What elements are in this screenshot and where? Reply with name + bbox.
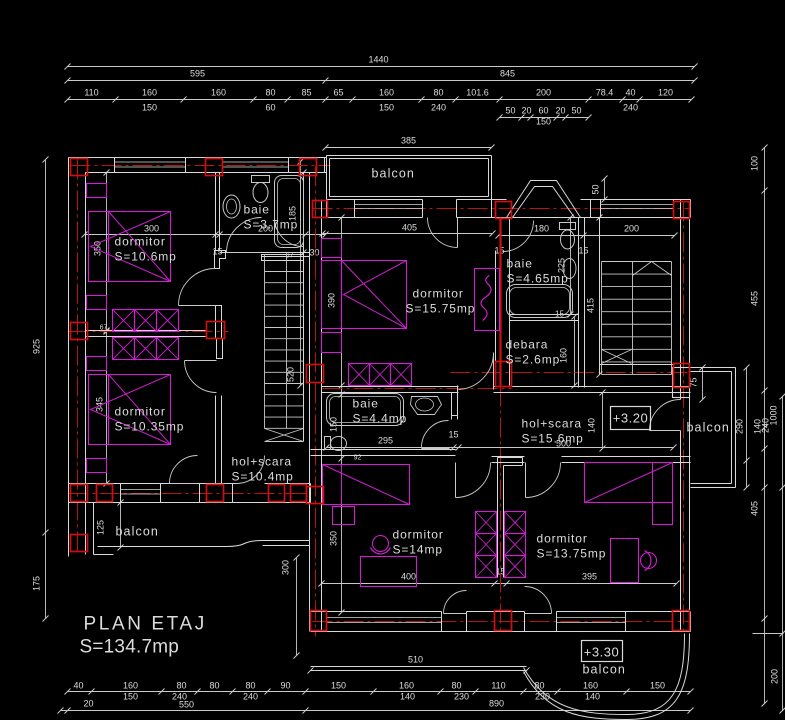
svg-text:415: 415: [586, 298, 596, 313]
svg-text:595: 595: [190, 69, 205, 79]
svg-text:240: 240: [623, 103, 638, 113]
svg-text:60: 60: [538, 106, 548, 116]
svg-text:78.4: 78.4: [596, 88, 614, 98]
svg-text:15: 15: [448, 430, 458, 440]
svg-text:925: 925: [32, 339, 42, 354]
svg-text:140: 140: [585, 692, 600, 702]
svg-text:120: 120: [658, 88, 673, 98]
svg-text:390: 390: [327, 293, 337, 308]
svg-text:85: 85: [301, 88, 311, 98]
svg-text:65: 65: [333, 88, 343, 98]
svg-text:455: 455: [750, 291, 760, 306]
svg-text:160: 160: [142, 88, 157, 98]
svg-text:50: 50: [591, 184, 601, 194]
svg-text:240: 240: [431, 103, 446, 113]
svg-text:240: 240: [243, 692, 258, 702]
svg-text:200: 200: [770, 669, 780, 684]
svg-text:balcon: balcon: [116, 525, 159, 539]
svg-text:dormitor: dormitor: [393, 528, 444, 542]
svg-text:125: 125: [96, 520, 106, 535]
svg-text:200: 200: [536, 88, 551, 98]
svg-text:S=10.6mp: S=10.6mp: [115, 250, 177, 264]
svg-text:80: 80: [433, 88, 443, 98]
svg-text:S=2.6mp: S=2.6mp: [506, 353, 561, 367]
svg-text:150: 150: [142, 103, 157, 113]
svg-text:80: 80: [176, 681, 186, 691]
svg-text:110: 110: [84, 88, 98, 98]
svg-text:395: 395: [582, 572, 597, 582]
svg-text:balcon: balcon: [372, 167, 415, 181]
svg-text:110: 110: [491, 681, 505, 691]
svg-text:400: 400: [401, 572, 416, 582]
svg-text:80: 80: [451, 681, 461, 691]
svg-text:S=4.65mp: S=4.65mp: [507, 272, 569, 286]
svg-text:175: 175: [32, 576, 42, 591]
svg-text:+3.20: +3.20: [613, 411, 648, 426]
svg-text:30: 30: [309, 248, 319, 258]
svg-text:200: 200: [624, 224, 639, 234]
svg-text:510: 510: [408, 655, 423, 665]
svg-text:80: 80: [209, 681, 219, 691]
svg-text:PLAN ETAJ: PLAN ETAJ: [84, 614, 207, 635]
svg-text:80: 80: [245, 681, 255, 691]
svg-text:dormitor: dormitor: [115, 405, 166, 419]
svg-text:15: 15: [212, 247, 222, 257]
svg-text:150: 150: [331, 681, 346, 691]
svg-text:150: 150: [650, 681, 665, 691]
svg-text:50: 50: [571, 106, 581, 116]
svg-text:295: 295: [378, 436, 393, 446]
svg-text:845: 845: [500, 69, 515, 79]
svg-text:90: 90: [280, 681, 290, 691]
svg-text:S=4.4mp: S=4.4mp: [353, 412, 408, 426]
svg-text:S=10.4mp: S=10.4mp: [232, 470, 294, 484]
svg-text:20: 20: [555, 106, 565, 116]
svg-text:40: 40: [625, 88, 635, 98]
svg-text:S=3.7mp: S=3.7mp: [244, 218, 299, 232]
svg-text:150: 150: [379, 103, 394, 113]
svg-text:230: 230: [454, 692, 469, 702]
svg-text:150: 150: [123, 692, 138, 702]
svg-text:50: 50: [505, 106, 515, 116]
svg-text:balcon: balcon: [583, 663, 626, 677]
svg-text:101.6: 101.6: [466, 88, 489, 98]
svg-text:60: 60: [265, 103, 275, 113]
svg-text:180: 180: [534, 224, 549, 234]
svg-text:baie: baie: [507, 257, 533, 271]
svg-text:350: 350: [329, 531, 339, 546]
svg-text:1440: 1440: [368, 55, 388, 65]
svg-text:dormitor: dormitor: [537, 532, 588, 546]
svg-text:140: 140: [587, 418, 597, 433]
svg-text:debara: debara: [506, 338, 549, 352]
svg-text:405: 405: [402, 223, 417, 233]
svg-text:S=15.6mp: S=15.6mp: [522, 432, 584, 446]
svg-text:dormitor: dormitor: [413, 287, 464, 301]
svg-text:hol+scara: hol+scara: [232, 455, 292, 469]
svg-text:160: 160: [583, 681, 598, 691]
svg-text:520: 520: [286, 367, 296, 382]
svg-text:405: 405: [750, 501, 760, 516]
svg-text:20: 20: [83, 699, 93, 709]
svg-text:S=134.7mp: S=134.7mp: [80, 637, 180, 658]
svg-text:385: 385: [401, 136, 416, 146]
svg-text:15: 15: [578, 246, 588, 256]
svg-text:S=10.35mp: S=10.35mp: [115, 420, 185, 434]
svg-text:160: 160: [211, 88, 226, 98]
svg-text:150: 150: [536, 117, 551, 127]
svg-text:S=14mp: S=14mp: [393, 543, 443, 557]
svg-text:20: 20: [521, 106, 531, 116]
svg-text:300: 300: [281, 560, 291, 575]
svg-text:S=15.75mp: S=15.75mp: [406, 302, 476, 316]
svg-text:890: 890: [489, 699, 504, 709]
svg-text:+3.30: +3.30: [584, 645, 619, 660]
svg-text:baie: baie: [244, 203, 270, 217]
svg-text:160: 160: [399, 681, 414, 691]
svg-text:40: 40: [73, 681, 83, 691]
svg-text:dormitor: dormitor: [115, 235, 166, 249]
svg-text:240: 240: [761, 418, 771, 433]
svg-text:baie: baie: [353, 397, 379, 411]
svg-text:hol+scara: hol+scara: [522, 417, 582, 431]
svg-text:80: 80: [265, 88, 275, 98]
svg-text:550: 550: [179, 700, 194, 710]
svg-text:300: 300: [144, 224, 159, 234]
svg-text:balcon: balcon: [687, 421, 730, 435]
svg-text:160: 160: [379, 88, 394, 98]
svg-text:S=13.75mp: S=13.75mp: [537, 547, 607, 561]
svg-text:140: 140: [400, 692, 415, 702]
svg-text:160: 160: [123, 681, 138, 691]
svg-text:100: 100: [750, 156, 760, 171]
